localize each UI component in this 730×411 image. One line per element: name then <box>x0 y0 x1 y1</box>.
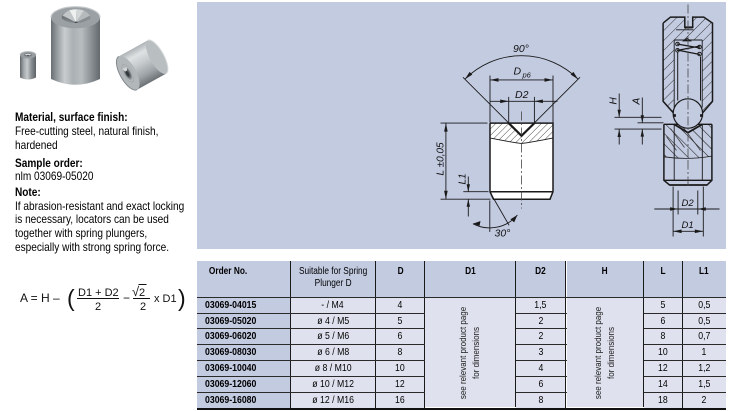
svg-text:L ±0,05: L ±0,05 <box>435 141 446 175</box>
svg-text:D1: D1 <box>681 220 693 231</box>
svg-text:L1: L1 <box>457 173 468 184</box>
svg-text:D2: D2 <box>681 198 694 209</box>
svg-text:2: 2 <box>139 287 145 299</box>
svg-text:A: A <box>631 97 642 105</box>
svg-text:(: ( <box>67 285 75 311</box>
svg-text:D2: D2 <box>515 89 529 101</box>
svg-text:−: − <box>123 291 130 305</box>
svg-text:D: D <box>513 65 521 77</box>
svg-text:): ) <box>178 285 186 311</box>
svg-text:90°: 90° <box>513 43 529 55</box>
svg-text:D1 + D2: D1 + D2 <box>78 287 119 299</box>
svg-text:2: 2 <box>140 301 146 313</box>
svg-text:x D1: x D1 <box>154 293 177 305</box>
svg-text:H: H <box>608 96 619 104</box>
svg-text:A = H –: A = H – <box>20 291 60 305</box>
svg-text:p6: p6 <box>521 70 531 79</box>
svg-text:30°: 30° <box>494 227 510 239</box>
svg-text:2: 2 <box>95 301 101 313</box>
